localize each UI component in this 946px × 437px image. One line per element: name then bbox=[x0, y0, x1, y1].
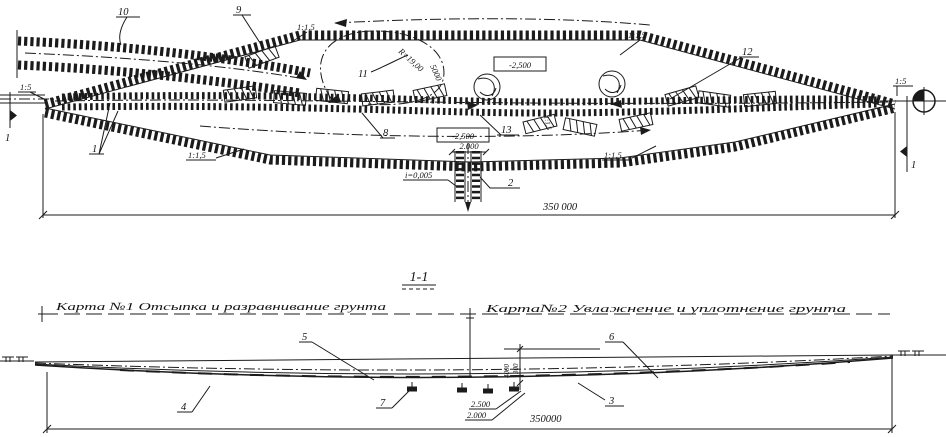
card-zones: Карта №1 Отсыпка и разравнивание грунта … bbox=[38, 301, 890, 378]
turning-loop bbox=[320, 31, 443, 105]
callout-7: 7 bbox=[380, 398, 386, 409]
card1-title: Карта №1 Отсыпка и разравнивание грунта bbox=[54, 301, 386, 313]
drawing-sheet: -2,500 -2,500 350 000 1 1 10 9 1 11 8 bbox=[0, 0, 946, 437]
slope-115-bottom-right: 1:1,5 bbox=[604, 150, 622, 160]
callout-6: 6 bbox=[609, 332, 615, 343]
section-flag-icon bbox=[10, 110, 17, 121]
callout-5: 5 bbox=[302, 332, 307, 343]
callout-9: 9 bbox=[236, 5, 242, 16]
callout-4: 4 bbox=[181, 402, 187, 413]
dim-2000: 2.000 bbox=[467, 410, 487, 420]
slope-115-bottom-left: 1:1,5 bbox=[188, 150, 206, 160]
axis-circle-icon bbox=[913, 90, 924, 101]
callout-11: 11 bbox=[358, 69, 368, 80]
section-title-group: 1-1 bbox=[402, 270, 436, 289]
elevation-upper: -2,500 bbox=[509, 60, 532, 70]
culvert bbox=[449, 143, 489, 212]
culvert-marks bbox=[407, 382, 519, 394]
ramp-width-label: 5000 bbox=[428, 63, 444, 83]
section-marker-right: 1 bbox=[911, 160, 916, 171]
callout-8: 8 bbox=[383, 128, 389, 139]
section-overall-dim: 350000 bbox=[529, 414, 562, 425]
vertical-dim-left: 4000 bbox=[503, 364, 511, 379]
slope-1-5-left: 1:5 bbox=[20, 82, 31, 92]
radius-label: R=19,00 bbox=[396, 45, 426, 74]
embankment-bands bbox=[18, 35, 895, 167]
callout-3: 3 bbox=[608, 396, 614, 407]
section-marker-left: 1 bbox=[5, 133, 10, 144]
gradient-label: i=0,005 bbox=[405, 170, 432, 180]
card2-title: Карта№2 Увлажнение и уплотнение грунта bbox=[484, 303, 847, 315]
culvert-width-label: 2.000 bbox=[459, 141, 479, 151]
section-title: 1-1 bbox=[410, 270, 429, 285]
vertical-dim-right: 300 bbox=[512, 363, 520, 375]
section-view: 1-1 Карта №1 Отсыпка и разравнивание гру… bbox=[0, 270, 946, 433]
machine-symbols bbox=[223, 46, 776, 136]
plan-overall-dim: 350 000 bbox=[542, 202, 578, 213]
technical-drawing: -2,500 -2,500 350 000 1 1 10 9 1 11 8 bbox=[0, 0, 946, 437]
elevation-lower: -2,500 bbox=[452, 131, 475, 141]
section-flag-icon bbox=[900, 146, 907, 157]
compactor-icon bbox=[599, 71, 625, 97]
slope-115-vertical: 1:1,5 bbox=[542, 115, 553, 131]
slope-1-5-right: 1:5 bbox=[895, 76, 906, 86]
callout-1: 1 bbox=[92, 144, 97, 155]
compactor-icon bbox=[474, 74, 500, 100]
dim-2500: 2.500 bbox=[471, 399, 491, 409]
slope-115-top-left: 1:1,5 bbox=[297, 22, 315, 32]
plan-callouts: 10 9 1 11 8 13 12 2 bbox=[89, 5, 759, 189]
callout-2: 2 bbox=[508, 178, 514, 189]
callout-10: 10 bbox=[118, 7, 129, 18]
plan-view: -2,500 -2,500 350 000 1 1 10 9 1 11 8 bbox=[0, 5, 946, 219]
slope-115-top-right: 1:1,5 bbox=[628, 30, 646, 40]
section-profile bbox=[0, 351, 946, 394]
callout-12: 12 bbox=[742, 47, 753, 58]
section-center-dims: 4000 300 bbox=[503, 344, 600, 390]
callout-13: 13 bbox=[501, 125, 512, 136]
